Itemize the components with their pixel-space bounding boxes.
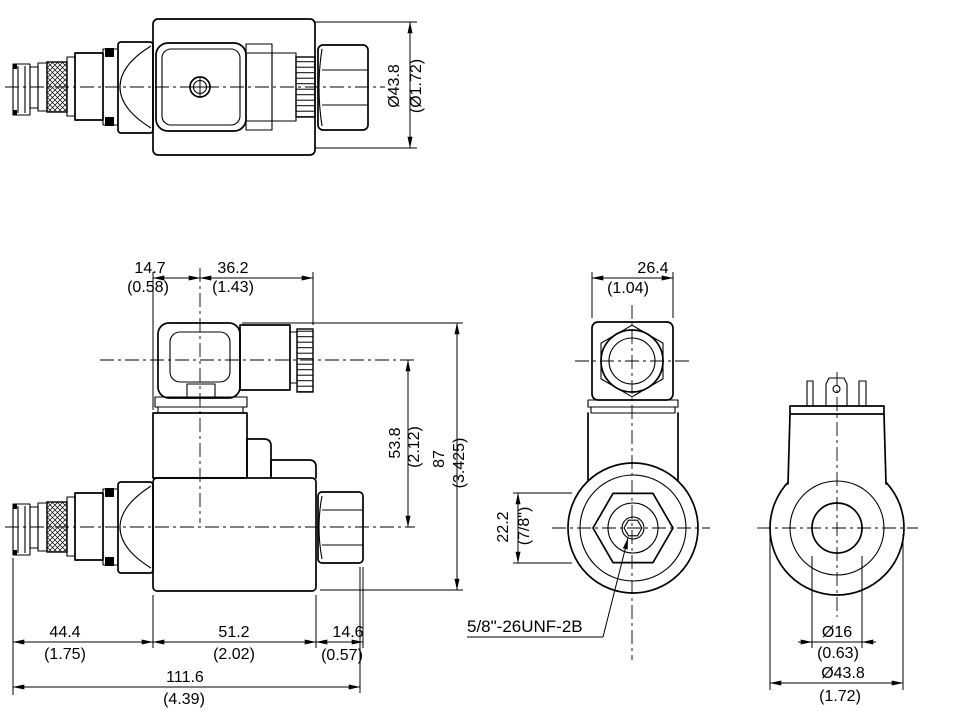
valve-body	[153, 478, 316, 591]
dim-top-width-in-label: (1.04)	[607, 280, 649, 297]
cartridge-top	[13, 42, 153, 133]
dim-hex-flats-label: 22.2	[495, 511, 512, 542]
thread-callout-label: 5/8"-26UNF-2B	[467, 617, 583, 636]
dim-center-height-in-label: (2.12)	[406, 426, 423, 468]
dim-bore-label: Ø16	[822, 624, 852, 641]
dim-body-len-in-label: (2.02)	[213, 646, 255, 663]
dim-coil-dia-rear-in-label: (1.72)	[819, 688, 861, 705]
din-connector-front	[155, 323, 313, 413]
side-view: 26.4 (1.04) 22.2 (7/8") 5/8"-26UNF-2B	[467, 260, 710, 660]
dim-conn-offset-label: 14.7	[134, 260, 165, 277]
dim-lengths: 44.4 (1.75) 51.2 (2.02) 14.6 (0.57) 111.…	[13, 558, 364, 708]
cartridge-front	[13, 482, 153, 573]
o-ring	[105, 557, 114, 566]
dim-coil-dia-in-label: (Ø1.72)	[408, 59, 425, 113]
o-ring	[105, 48, 114, 57]
dim-coil-dia-rear: Ø43.8 (1.72)	[770, 534, 903, 705]
ground-screw	[833, 386, 840, 393]
dim-body-len-label: 51.2	[218, 624, 249, 641]
knurl-section	[47, 62, 67, 112]
thread-callout: 5/8"-26UNF-2B	[467, 538, 628, 637]
connector-pin	[859, 381, 866, 406]
locknut-top	[318, 45, 368, 130]
dim-total-len-label: 111.6	[166, 669, 204, 686]
dim-bore-in-label: (0.63)	[817, 645, 859, 662]
o-ring	[105, 488, 114, 497]
dim-hex-flats-in-label: (7/8")	[516, 507, 533, 546]
dim-coil-dia-label: Ø43.8	[386, 64, 403, 108]
cable-gland	[296, 57, 315, 117]
dim-coil-diameter: Ø43.8 (Ø1.72)	[315, 22, 425, 148]
dim-coil-dia-rear-label: Ø43.8	[821, 665, 865, 682]
dim-cartridge-len-in-label: (1.75)	[44, 646, 86, 663]
solenoid-coil	[153, 413, 316, 478]
tube-step	[247, 439, 271, 478]
dim-center-height-label: 53.8	[387, 427, 404, 458]
knurl-section	[47, 502, 67, 552]
tube-end-top	[588, 322, 678, 481]
cable-gland	[297, 329, 313, 392]
technical-drawing: Ø43.8 (Ø1.72)	[0, 0, 958, 711]
dim-total-len-in-label: (4.39)	[163, 691, 205, 708]
dim-conn-width-in-label: (1.43)	[212, 279, 254, 296]
locknut-front	[318, 492, 363, 563]
dim-top-width-label: 26.4	[637, 260, 668, 277]
dim-nut-len-label: 14.6	[332, 624, 363, 641]
connector-pin	[807, 381, 813, 406]
o-ring	[105, 117, 114, 126]
dim-conn-offset-in-label: (0.58)	[127, 279, 169, 296]
front-view: 14.7 (0.58) 36.2 (1.43) 53.8 (2.12) 87 (…	[5, 260, 468, 708]
connector-latch	[187, 384, 215, 398]
dim-connector-offset: 14.7 (0.58) 36.2 (1.43)	[127, 260, 313, 410]
cartridge-hex	[118, 482, 153, 573]
dim-heights: 53.8 (2.12) 87 (3.425)	[242, 323, 468, 590]
dim-nut-len-in-label: (0.57)	[321, 647, 363, 664]
dim-total-height-in-label: (3.425)	[451, 438, 468, 489]
top-view: Ø43.8 (Ø1.72)	[5, 19, 425, 155]
dim-conn-width-label: 36.2	[217, 260, 248, 277]
drawing-canvas: Ø43.8 (Ø1.72)	[0, 0, 958, 711]
rear-view: Ø16 (0.63) Ø43.8 (1.72)	[757, 372, 918, 705]
dim-top-width: 26.4 (1.04)	[592, 260, 673, 318]
body-boss	[271, 460, 316, 478]
dim-cartridge-len-label: 44.4	[49, 624, 80, 641]
cartridge-hex	[118, 42, 153, 133]
dim-total-height-label: 87	[431, 450, 448, 468]
